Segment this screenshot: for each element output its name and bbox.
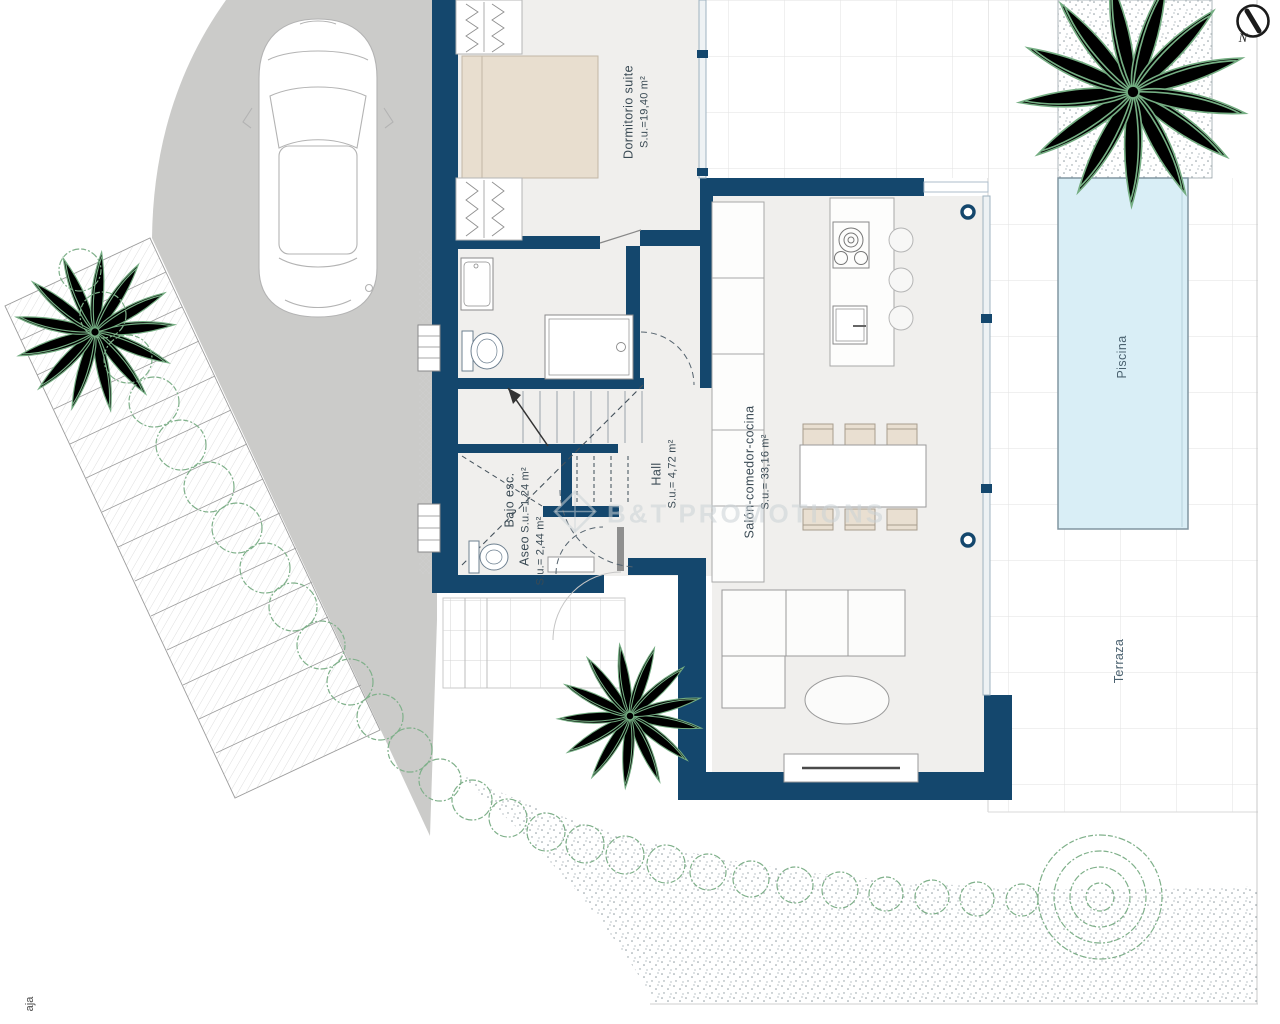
bathroom-sink <box>461 258 493 310</box>
room-name: Aseo <box>516 517 533 586</box>
room-area: S.u.= 2,44 m² <box>533 517 548 586</box>
tv-unit <box>784 754 918 782</box>
bar-stools <box>889 228 913 330</box>
terrace-label: Terraza <box>1111 639 1128 683</box>
bed <box>462 56 598 178</box>
room-name: Salón-comedor-cocina <box>741 405 758 538</box>
room-name: Hall <box>648 440 665 509</box>
pool-label: Piscina <box>1114 335 1131 378</box>
room-area: S.u.= 4,72 m² <box>665 440 680 509</box>
room-label-hall: Hall S.u.= 4,72 m² <box>648 440 679 509</box>
car-top-view <box>243 19 393 317</box>
dining-table <box>800 445 926 507</box>
compass-north-label: N <box>1239 30 1248 46</box>
room-label-aseo: Aseo S.u.= 2,44 m² <box>516 517 547 586</box>
wardrobe-bottom <box>456 178 522 240</box>
aseo-basin <box>548 557 594 572</box>
wardrobe-top <box>456 0 522 54</box>
terrace-name: Terraza <box>1111 639 1128 683</box>
coffee-table <box>805 676 889 724</box>
room-name: Dormitorio suite <box>620 65 637 159</box>
room-area: S.u.=19,40 m² <box>637 65 652 159</box>
kitchen-sink <box>833 306 867 344</box>
dining-set <box>800 424 926 530</box>
terrace-tiles-bedroom <box>706 0 988 178</box>
bathroom-toilet <box>462 331 503 371</box>
room-label-dormitorio: Dormitorio suite S.u.=19,40 m² <box>620 65 651 159</box>
pool-name: Piscina <box>1114 335 1131 378</box>
room-area: S.u.= 33,16 m² <box>758 405 773 538</box>
room-label-salon: Salón-comedor-cocina S.u.= 33,16 m² <box>741 405 772 538</box>
cropped-edge-text: aja <box>24 997 36 1012</box>
shower-tray <box>545 315 633 379</box>
floor-plan-canvas: Dormitorio suite S.u.=19,40 m² Hall S.u.… <box>0 0 1280 1024</box>
